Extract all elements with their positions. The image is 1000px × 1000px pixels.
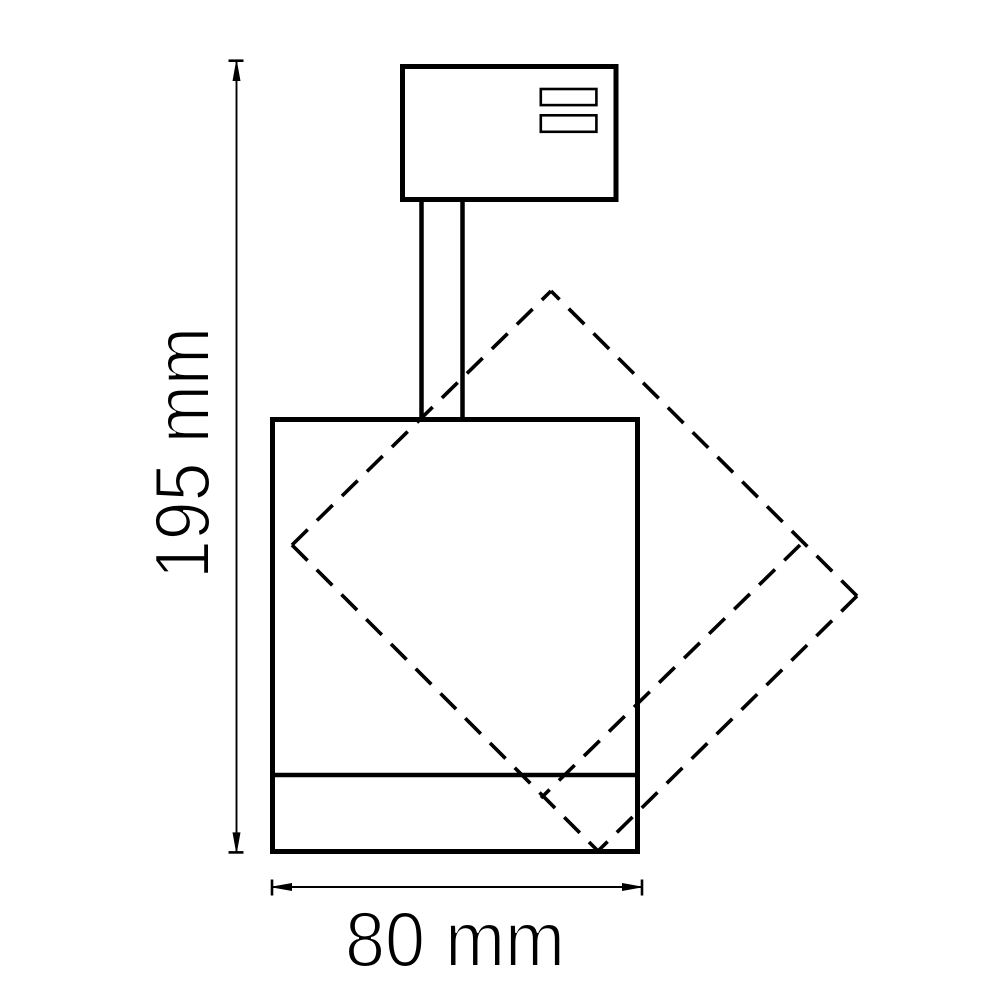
svg-text:80 mm: 80 mm [345, 895, 565, 983]
svg-text:195 mm: 195 mm [138, 327, 226, 579]
